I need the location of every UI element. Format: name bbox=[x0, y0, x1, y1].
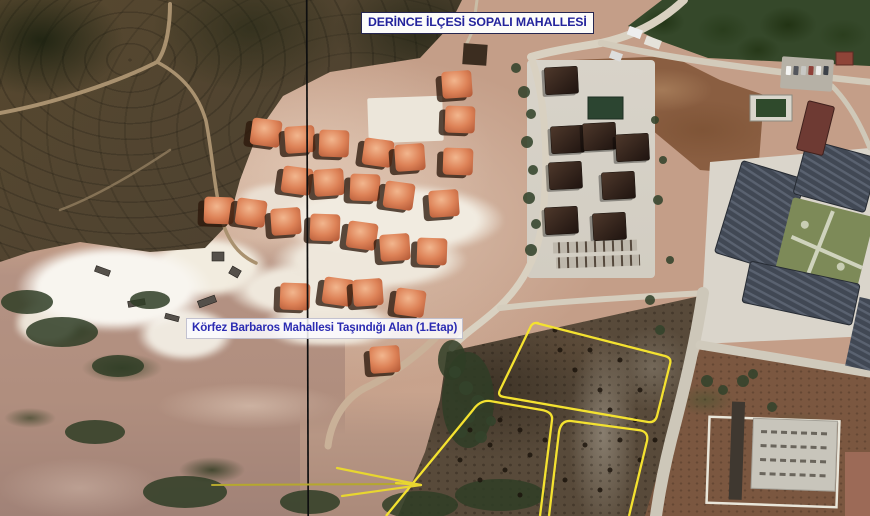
complex-block-roof bbox=[545, 161, 582, 192]
shrub-dot bbox=[618, 358, 623, 363]
building-roof bbox=[303, 213, 340, 244]
scrub-patch bbox=[130, 291, 170, 309]
road bbox=[832, 86, 870, 148]
tree bbox=[526, 109, 536, 119]
tree bbox=[475, 431, 487, 443]
parking-lot bbox=[609, 26, 853, 92]
scrub-patch bbox=[65, 420, 125, 444]
shrub-dot bbox=[468, 428, 473, 433]
parked-car bbox=[793, 66, 799, 75]
building-roof bbox=[273, 282, 310, 313]
machinery bbox=[212, 252, 224, 261]
building-roof bbox=[376, 179, 416, 214]
white-building bbox=[609, 50, 623, 62]
dirt-path bbox=[157, 62, 256, 263]
parked-car bbox=[808, 66, 814, 75]
shrub-dot bbox=[638, 388, 643, 393]
parked-car bbox=[786, 66, 792, 75]
apartment-buildings bbox=[714, 95, 870, 373]
parked-car bbox=[816, 66, 822, 75]
tree bbox=[521, 136, 533, 148]
complex-blocks bbox=[541, 66, 649, 243]
shrub-dot bbox=[608, 468, 613, 473]
complex-block-roof bbox=[589, 212, 626, 243]
building-roof bbox=[422, 189, 460, 221]
building-roof bbox=[438, 105, 475, 136]
complex-block-roof bbox=[598, 171, 635, 202]
scrub-patch bbox=[280, 490, 340, 514]
building-roof bbox=[243, 116, 283, 151]
complex-block-roof bbox=[541, 66, 578, 97]
tree bbox=[531, 219, 541, 229]
shrub-dot bbox=[618, 438, 623, 443]
building-roof bbox=[373, 233, 411, 265]
building-roof bbox=[264, 207, 302, 239]
tree bbox=[528, 165, 538, 175]
building-roof bbox=[339, 219, 379, 254]
district-label: DERİNCE İLÇESİ SOPALI MAHALLESİ bbox=[361, 12, 594, 34]
terrace-row bbox=[556, 255, 640, 269]
tree bbox=[666, 256, 674, 264]
pool-foundation bbox=[588, 97, 623, 119]
shrub-dot bbox=[598, 488, 603, 493]
shrub-dot bbox=[518, 428, 523, 433]
shrub-dot bbox=[598, 388, 603, 393]
tree bbox=[459, 381, 473, 395]
shrub-dot bbox=[488, 443, 493, 448]
complex-block-roof bbox=[541, 206, 578, 237]
complex-block-roof bbox=[579, 122, 616, 153]
shrub-dot bbox=[653, 438, 658, 443]
tree bbox=[651, 116, 659, 124]
building-roof bbox=[435, 70, 473, 102]
scrub-patch bbox=[455, 479, 545, 511]
tree bbox=[449, 366, 461, 378]
tree bbox=[737, 375, 749, 387]
shrub-dot bbox=[558, 348, 563, 353]
scrub-patch bbox=[26, 317, 98, 347]
scrub-patch bbox=[143, 476, 227, 508]
walled-garden-hedge bbox=[756, 99, 786, 117]
shrub-dot bbox=[588, 348, 593, 353]
machinery bbox=[229, 266, 242, 278]
dirt-path bbox=[0, 4, 170, 113]
shrub-dot bbox=[458, 458, 463, 463]
scrub-patch bbox=[92, 355, 144, 377]
terrace-row bbox=[553, 240, 637, 254]
machinery bbox=[197, 295, 216, 308]
tree bbox=[718, 385, 728, 395]
tree bbox=[655, 325, 665, 335]
tree bbox=[518, 86, 530, 98]
scrub-patch bbox=[1, 290, 53, 314]
tree bbox=[653, 195, 663, 205]
road bbox=[700, 345, 870, 373]
annotation-overlay bbox=[0, 0, 870, 516]
arrow-shaft bbox=[212, 484, 400, 485]
shrub-dot bbox=[573, 368, 578, 373]
dark-shed bbox=[462, 43, 487, 66]
tree bbox=[748, 369, 758, 379]
satellite-image: DERİNCE İLÇESİ SOPALI MAHALLESİ Körfez B… bbox=[0, 0, 870, 516]
building-roof bbox=[312, 129, 349, 160]
red-roof-hut bbox=[836, 52, 853, 65]
quarry-structures bbox=[94, 252, 241, 322]
substation-pad bbox=[751, 418, 837, 491]
tree bbox=[455, 426, 467, 438]
shrub-dot bbox=[498, 418, 503, 423]
shrub-dot bbox=[528, 453, 533, 458]
relocation-area-label: Körfez Barbaros Mahallesi Taşındığı Alan… bbox=[186, 318, 463, 339]
tree bbox=[511, 63, 521, 73]
shrub-dot bbox=[518, 493, 523, 498]
tree bbox=[659, 156, 667, 164]
machinery bbox=[94, 266, 110, 277]
parked-car bbox=[823, 66, 829, 75]
tree bbox=[767, 402, 777, 412]
shrub-dot bbox=[608, 408, 613, 413]
road bbox=[500, 293, 703, 308]
corner-building bbox=[845, 452, 870, 516]
scrub-patch bbox=[382, 491, 458, 516]
building-roof bbox=[387, 286, 427, 321]
complex-block-roof bbox=[612, 133, 649, 164]
building-roof bbox=[278, 125, 316, 157]
shrub-dot bbox=[563, 478, 568, 483]
shrub-dot bbox=[543, 438, 548, 443]
tree bbox=[523, 192, 535, 204]
land-plot-outline-3 bbox=[549, 421, 647, 516]
divider-line bbox=[307, 0, 309, 516]
building-roof bbox=[343, 173, 380, 204]
building-roof bbox=[410, 237, 447, 268]
tree bbox=[645, 295, 655, 305]
substation bbox=[707, 401, 840, 507]
shrub-dot bbox=[583, 443, 588, 448]
white-building bbox=[644, 36, 662, 50]
shrub-dot bbox=[503, 468, 508, 473]
concrete-slab bbox=[367, 96, 444, 144]
tree bbox=[525, 244, 537, 256]
dirt-path bbox=[60, 150, 170, 210]
machinery bbox=[165, 313, 180, 321]
building-roof bbox=[228, 196, 268, 231]
shrub-dot bbox=[478, 478, 483, 483]
complex-block-roof bbox=[547, 125, 584, 156]
parked-car bbox=[801, 66, 807, 75]
building-roof bbox=[436, 147, 473, 178]
tree bbox=[701, 375, 713, 387]
tree bbox=[486, 416, 496, 426]
housing-complex bbox=[541, 66, 649, 268]
